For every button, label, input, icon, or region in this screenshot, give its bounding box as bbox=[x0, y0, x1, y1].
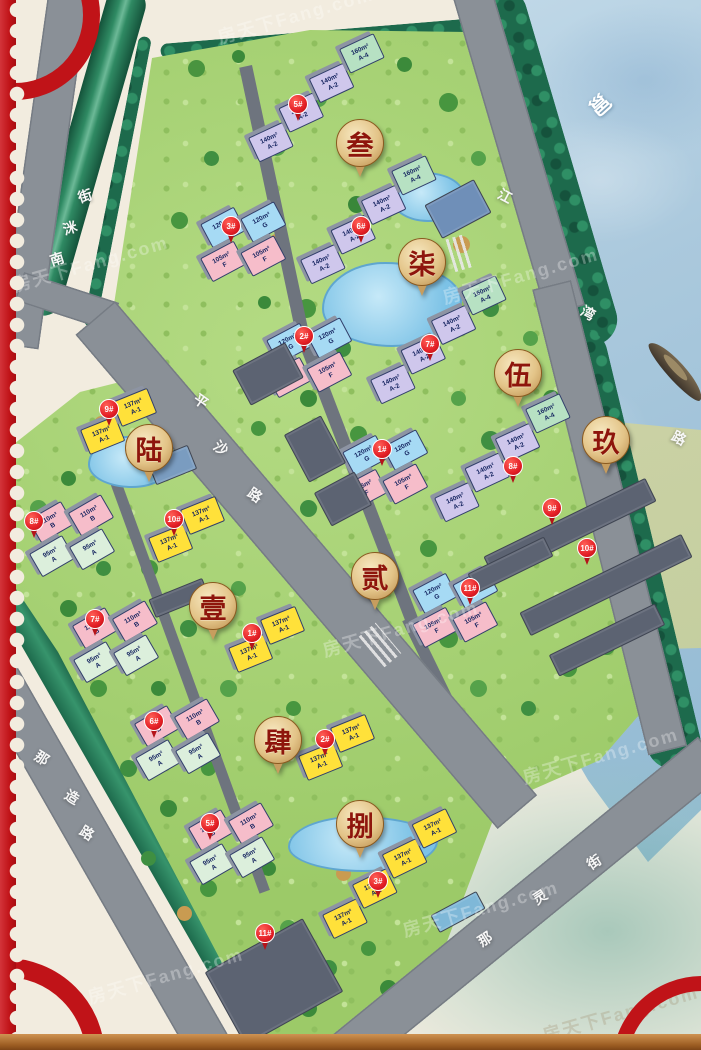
phase-marker-label: 捌 bbox=[336, 800, 384, 848]
phase-marker-label: 柒 bbox=[398, 238, 446, 286]
building-pin-9#[interactable]: 9# bbox=[542, 498, 564, 528]
phase-marker-柒[interactable]: 柒 bbox=[398, 238, 448, 304]
building-pin-6#[interactable]: 6# bbox=[144, 711, 166, 741]
building-pin-label: 11# bbox=[460, 578, 480, 598]
building-pin-label: 5# bbox=[288, 94, 308, 114]
building-pin-6#[interactable]: 6# bbox=[351, 216, 373, 246]
phase-marker-捌[interactable]: 捌 bbox=[336, 800, 386, 866]
building-pin-label: 1# bbox=[242, 623, 262, 643]
phase-marker-叁[interactable]: 叁 bbox=[336, 119, 386, 185]
phase-marker-label: 叁 bbox=[336, 119, 384, 167]
phase-marker-label: 肆 bbox=[254, 716, 302, 764]
phase-marker-肆[interactable]: 肆 bbox=[254, 716, 304, 782]
page-frame-left bbox=[0, 0, 16, 1050]
building-pin-label: 2# bbox=[294, 326, 314, 346]
building-pin-11#[interactable]: 11# bbox=[255, 923, 277, 953]
building-pin-label: 2# bbox=[315, 729, 335, 749]
building-pin-11#[interactable]: 11# bbox=[460, 578, 482, 608]
building-pin-label: 8# bbox=[503, 456, 523, 476]
building-pin-label: 3# bbox=[221, 216, 241, 236]
building-pin-label: 10# bbox=[164, 509, 184, 529]
building-pin-10#[interactable]: 10# bbox=[164, 509, 186, 539]
building-pin-label: 7# bbox=[420, 334, 440, 354]
phase-marker-label: 壹 bbox=[189, 582, 237, 630]
phase-marker-壹[interactable]: 壹 bbox=[189, 582, 239, 648]
building-pin-9#[interactable]: 9# bbox=[99, 399, 121, 429]
building-pin-2#[interactable]: 2# bbox=[294, 326, 316, 356]
building-pin-7#[interactable]: 7# bbox=[420, 334, 442, 364]
building-pin-2#[interactable]: 2# bbox=[315, 729, 337, 759]
phase-marker-label: 陆 bbox=[125, 424, 173, 472]
building-pin-label: 6# bbox=[351, 216, 371, 236]
building-pin-7#[interactable]: 7# bbox=[85, 609, 107, 639]
building-pin-label: 5# bbox=[200, 813, 220, 833]
page-frame-bottom bbox=[0, 1034, 701, 1050]
building-pin-label: 8# bbox=[24, 511, 44, 531]
building-pin-8#[interactable]: 8# bbox=[503, 456, 525, 486]
building-pin-label: 3# bbox=[368, 871, 388, 891]
building-pin-label: 7# bbox=[85, 609, 105, 629]
phase-marker-玖[interactable]: 玖 bbox=[582, 416, 632, 482]
building-pin-label: 10# bbox=[577, 538, 597, 558]
building-pin-label: 9# bbox=[99, 399, 119, 419]
phase-marker-伍[interactable]: 伍 bbox=[494, 349, 544, 415]
building-pin-label: 11# bbox=[255, 923, 275, 943]
building-pin-3#[interactable]: 3# bbox=[221, 216, 243, 246]
phase-marker-label: 伍 bbox=[494, 349, 542, 397]
site-plan-map: 街 洣 南 平 沙 路 那 造 路 那 灵 街 江 湾 路 邕 房天下Fang.… bbox=[0, 0, 701, 1050]
building-pin-label: 1# bbox=[372, 439, 392, 459]
building-pin-label: 6# bbox=[144, 711, 164, 731]
building-pin-5#[interactable]: 5# bbox=[288, 94, 310, 124]
building-pin-5#[interactable]: 5# bbox=[200, 813, 222, 843]
building-pin-1#[interactable]: 1# bbox=[242, 623, 264, 653]
building-pin-10#[interactable]: 10# bbox=[577, 538, 599, 568]
phase-marker-label: 玖 bbox=[582, 416, 630, 464]
phase-marker-label: 贰 bbox=[351, 552, 399, 600]
building-pin-label: 9# bbox=[542, 498, 562, 518]
phase-marker-贰[interactable]: 贰 bbox=[351, 552, 401, 618]
building-pin-8#[interactable]: 8# bbox=[24, 511, 46, 541]
building-pin-3#[interactable]: 3# bbox=[368, 871, 390, 901]
phase-marker-陆[interactable]: 陆 bbox=[125, 424, 175, 490]
building-pin-1#[interactable]: 1# bbox=[372, 439, 394, 469]
